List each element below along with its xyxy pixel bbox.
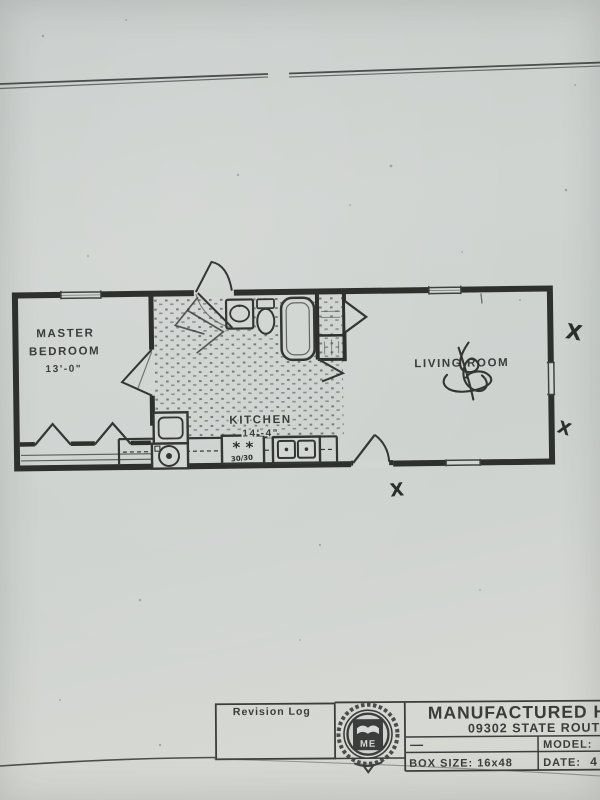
company-address: 09302 STATE ROUT (468, 721, 600, 736)
revision-cell-mark: — (410, 737, 424, 752)
x-mark-icon: X (564, 319, 584, 345)
company-name: MANUFACTURED HOU (428, 701, 600, 722)
logo-monogram: ME (360, 739, 376, 750)
dryer-icon (152, 443, 188, 468)
master-bedroom-label-line1: MASTER (36, 327, 94, 340)
kitchen-dimension: 14'-4" (242, 428, 279, 439)
bathtub-icon (281, 298, 315, 360)
window-living-room-bottom (446, 458, 480, 467)
x-mark-icon: X (555, 418, 574, 441)
date-label: DATE: (543, 757, 581, 769)
window-master-bedroom (61, 290, 101, 300)
sheet-top-border-lines (0, 63, 600, 89)
window-living-room-right (546, 362, 555, 394)
master-bedroom-label-line2: BEDROOM (29, 345, 100, 358)
x-mark-icon: X (389, 479, 405, 501)
range-icon: * * 30/30 (222, 435, 264, 464)
handwritten-doodle-living-room (443, 342, 491, 400)
title-block: ME Revision Log MANUFACTURED HOU 09302 S… (216, 700, 600, 773)
bedroom-door-swing (122, 350, 153, 396)
date-value: 4 (590, 755, 598, 769)
scan-stray-mark (481, 293, 482, 303)
master-bedroom-dimension: 13'-0" (45, 364, 82, 375)
closet-shelf-lines (21, 454, 151, 461)
toilet-icon (257, 299, 274, 334)
window-living-room-top (429, 285, 461, 294)
bedroom-partition-wall (151, 296, 153, 426)
floor-plan: * * 30/30 MASTER (14, 257, 556, 473)
scanned-floor-plan-sheet: * * 30/30 MASTER (0, 0, 600, 800)
kitchen-double-sink-icon (273, 437, 320, 464)
revision-log-label: Revision Log (233, 706, 311, 719)
entry-door-swing (351, 435, 393, 469)
kitchen-label: KITCHEN (229, 414, 291, 427)
company-logo-seal: ME (338, 705, 397, 773)
blueprint-drawing: * * 30/30 MASTER (0, 0, 600, 800)
model-label: MODEL: (543, 739, 592, 751)
x-mark-annotations: X X X (389, 319, 584, 501)
washer-icon (153, 412, 187, 443)
